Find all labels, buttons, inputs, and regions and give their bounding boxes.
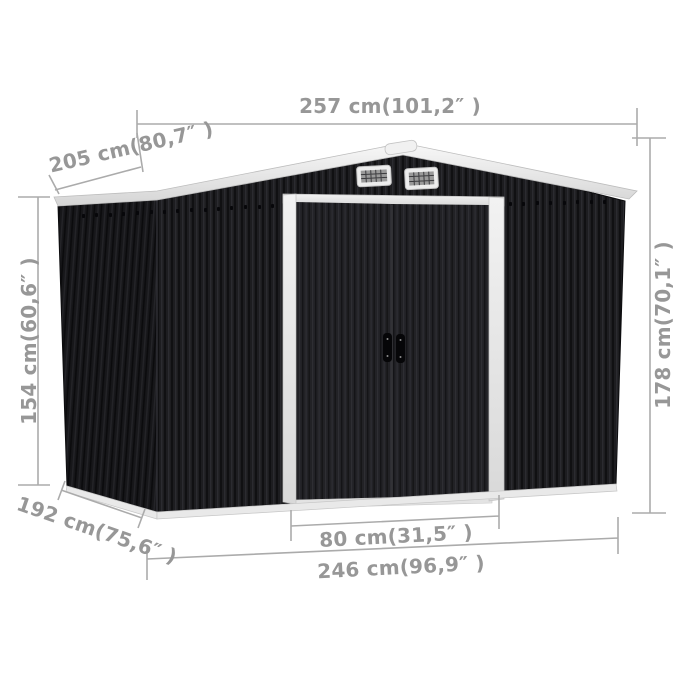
dim-wall-height-label: 154 cm(60,6″ ) xyxy=(17,257,41,425)
gable-vent-left xyxy=(356,165,391,187)
dim-width-top-label: 257 cm(101,2″ ) xyxy=(299,94,481,118)
door-frame-right xyxy=(489,197,504,501)
door-left xyxy=(296,202,392,505)
dim-total-height-label: 178 cm(70,1″ ) xyxy=(651,241,675,409)
gable-vent-right xyxy=(404,167,438,190)
side-wall xyxy=(58,194,157,512)
door-frame-left xyxy=(283,194,296,504)
door-assembly xyxy=(283,194,504,508)
dimension-diagram: 257 cm(101,2″ ) 205 cm(80,7″ ) 154 cm(60… xyxy=(0,0,685,685)
door-right xyxy=(392,204,489,503)
